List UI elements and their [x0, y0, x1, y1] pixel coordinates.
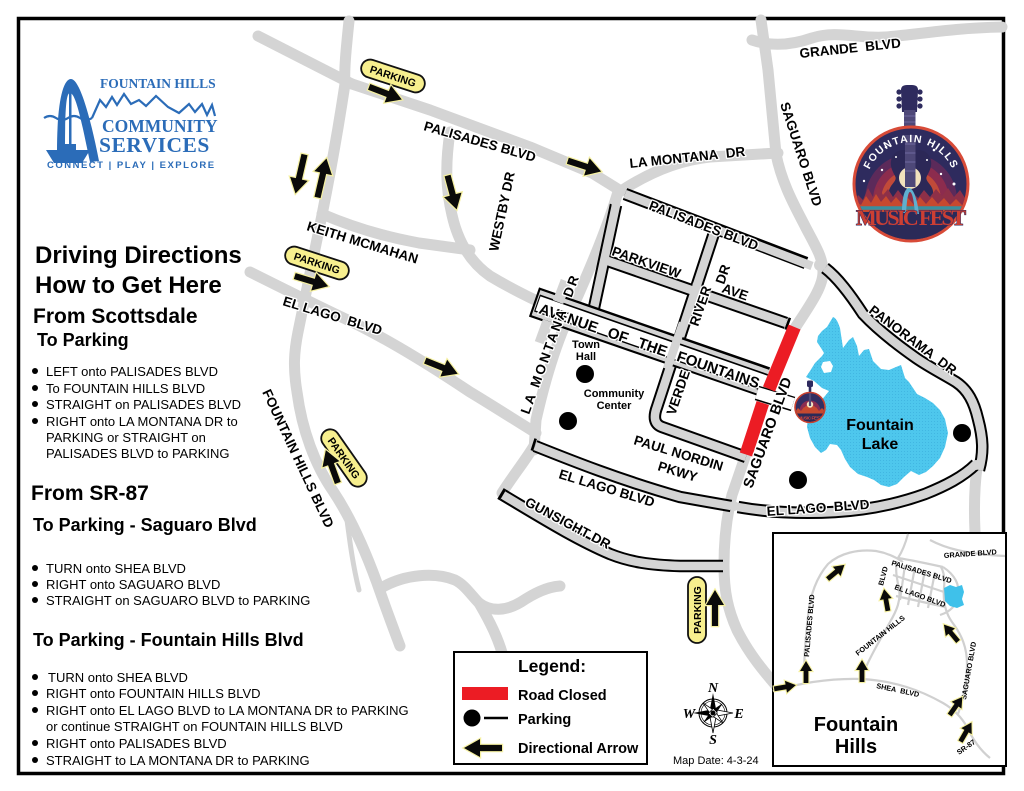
svg-text:Town: Town	[572, 339, 600, 351]
svg-text:S: S	[709, 733, 717, 748]
svg-text:Road Closed: Road Closed	[518, 688, 607, 704]
svg-text:Community: Community	[584, 388, 645, 400]
svg-text:Center: Center	[597, 400, 633, 412]
svg-text:TURN onto SHEA BLVD: TURN onto SHEA BLVD	[46, 561, 186, 576]
svg-text:E: E	[733, 707, 743, 722]
svg-text:W: W	[683, 707, 697, 722]
svg-text:TURN onto SHEA BLVD: TURN onto SHEA BLVD	[48, 670, 188, 685]
svg-text:To Parking - Saguaro Blvd: To Parking - Saguaro Blvd	[33, 515, 257, 535]
svg-text:RIGHT onto FOUNTAIN HILLS BLVD: RIGHT onto FOUNTAIN HILLS BLVD	[46, 686, 261, 701]
svg-text:SERVICES: SERVICES	[99, 133, 210, 157]
svg-text:From Scottsdale: From Scottsdale	[33, 305, 198, 328]
svg-text:Map Date: 4-3-24: Map Date: 4-3-24	[673, 755, 759, 767]
svg-text:From SR-87: From SR-87	[31, 482, 149, 505]
svg-text:Legend:: Legend:	[518, 656, 586, 676]
svg-text:Lake: Lake	[862, 436, 899, 453]
svg-text:Parking: Parking	[518, 712, 571, 728]
svg-text:STRAIGHT on SAGUARO BLVD to PA: STRAIGHT on SAGUARO BLVD to PARKING	[46, 593, 310, 608]
svg-text:LA MONTANA DR: LA MONTANA DR	[629, 144, 746, 171]
svg-text:Hall: Hall	[576, 351, 596, 363]
svg-text:PANORAMA DR: PANORAMA DR	[866, 302, 959, 378]
svg-text:LEFT onto PALISADES BLVD: LEFT onto PALISADES BLVD	[46, 364, 218, 379]
svg-text:PARKING: PARKING	[692, 586, 704, 634]
svg-text:CONNECT | PLAY | EXPLORE: CONNECT | PLAY | EXPLORE	[47, 160, 216, 171]
svg-text:RIGHT onto SAGUARO BLVD: RIGHT onto SAGUARO BLVD	[46, 577, 220, 592]
svg-text:How to Get Here: How to Get Here	[35, 272, 222, 299]
svg-text:PALISADES BLVD to PARKING: PALISADES BLVD to PARKING	[46, 446, 230, 461]
svg-text:MUSIC FEST: MUSIC FEST	[856, 205, 966, 230]
svg-text:RIGHT onto EL LAGO BLVD to LA: RIGHT onto EL LAGO BLVD to LA MONTANA DR…	[46, 703, 409, 718]
svg-text:PARKING or STRAIGHT on: PARKING or STRAIGHT on	[46, 430, 206, 445]
svg-text:AVENUE OF THE FOUNTAINS: AVENUE OF THE FOUNTAINS	[537, 301, 762, 393]
svg-text:Driving Directions: Driving Directions	[35, 242, 242, 269]
svg-text:Fountain: Fountain	[814, 714, 898, 736]
svg-text:STRAIGHT to LA MONTANA DR to P: STRAIGHT to LA MONTANA DR to PARKING	[46, 753, 310, 768]
svg-text:To Parking: To Parking	[37, 330, 129, 350]
svg-text:STRAIGHT on PALISADES BLVD: STRAIGHT on PALISADES BLVD	[46, 397, 241, 412]
svg-text:Directional Arrow: Directional Arrow	[518, 741, 639, 757]
svg-text:N: N	[707, 681, 719, 696]
svg-text:or continue STRAIGHT on FOUNTA: or continue STRAIGHT on FOUNTAIN HILLS B…	[46, 719, 343, 734]
svg-text:FOUNTAIN HILLS: FOUNTAIN HILLS	[100, 76, 216, 91]
svg-text:RIGHT onto PALISADES BLVD: RIGHT onto PALISADES BLVD	[46, 736, 227, 751]
svg-text:WESTBY DR: WESTBY DR	[486, 170, 518, 252]
svg-text:To Parking - Fountain Hills Bl: To Parking - Fountain Hills Blvd	[33, 630, 304, 650]
svg-text:RIGHT onto LA MONTANA DR to: RIGHT onto LA MONTANA DR to	[46, 414, 238, 429]
svg-text:Fountain: Fountain	[846, 417, 914, 434]
svg-text:To FOUNTAIN HILLS BLVD: To FOUNTAIN HILLS BLVD	[46, 381, 205, 396]
svg-text:Hills: Hills	[835, 736, 877, 758]
svg-text:GUNSIGHT DR: GUNSIGHT DR	[523, 494, 614, 552]
